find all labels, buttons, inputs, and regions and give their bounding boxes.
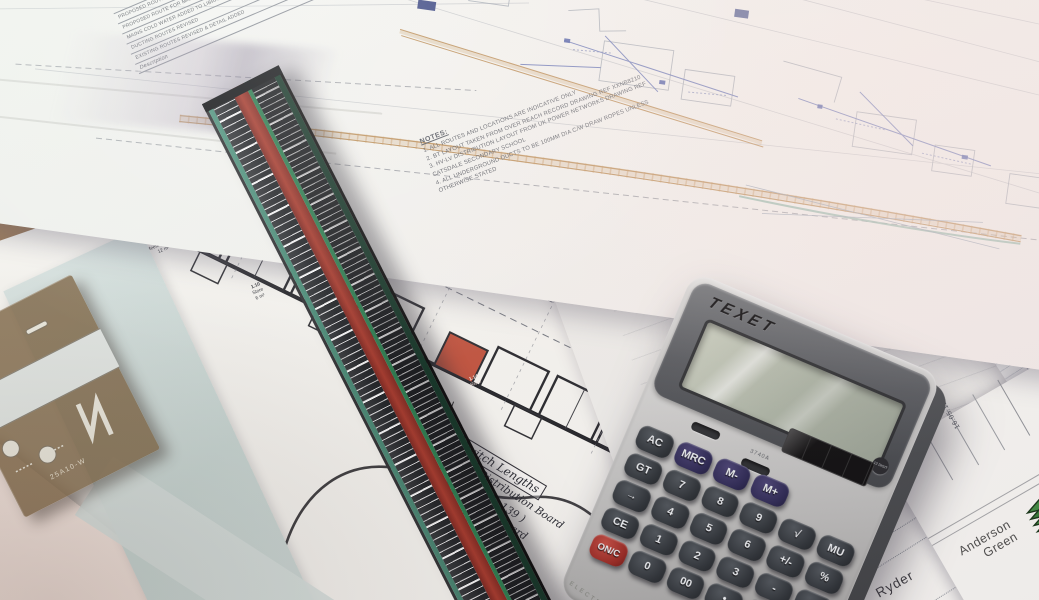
switch-slot: [690, 421, 721, 441]
ryder-label: Ryder: [873, 568, 916, 600]
photo-desk-scene: 1.09 Meeting Room 12 m² 1.10 Store 6 m² …: [0, 0, 1039, 600]
